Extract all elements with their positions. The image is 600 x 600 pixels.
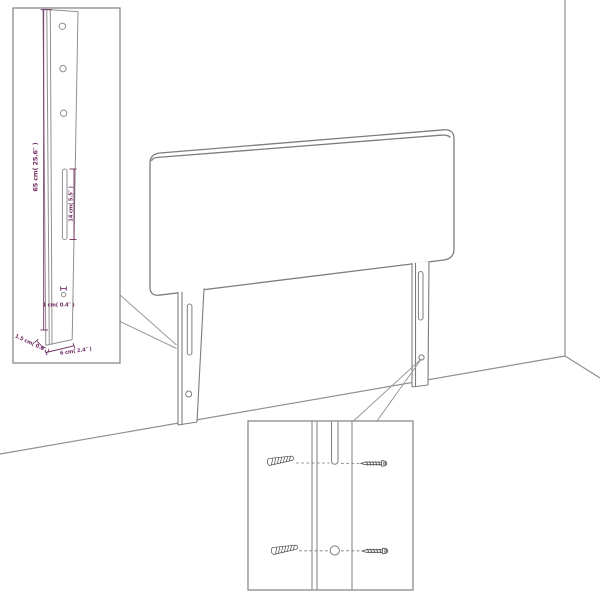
left-leg-slot bbox=[187, 304, 192, 355]
left-leg bbox=[178, 289, 204, 426]
diagram-canvas: 65 cm( 25.6″ ) 14 cm( 5.5″ ) 1 cm( 0.4″ … bbox=[0, 0, 600, 600]
slot-height-label: 14 cm( 5.5″ ) bbox=[68, 186, 74, 221]
right-leg-slot bbox=[418, 272, 423, 321]
right-callout-line-1 bbox=[354, 359, 422, 421]
callout-lines bbox=[120, 295, 421, 421]
inset-slot bbox=[62, 169, 67, 240]
inset-hole-2 bbox=[60, 65, 66, 71]
inset-box bbox=[248, 421, 413, 590]
inset-hole-3 bbox=[60, 110, 66, 116]
leg-dimension-inset: 65 cm( 25.6″ ) 14 cm( 5.5″ ) 1 cm( 0.4″ … bbox=[13, 8, 120, 363]
headboard bbox=[150, 130, 454, 296]
floor-line-right bbox=[565, 356, 600, 378]
leg-height-label: 65 cm( 25.6″ ) bbox=[32, 142, 40, 191]
inset-hole-1 bbox=[59, 23, 65, 29]
left-leg-hole bbox=[186, 391, 192, 397]
left-callout-line-1 bbox=[120, 295, 177, 345]
hole-diameter-label: 1 cm( 0.4″ ) bbox=[43, 303, 75, 309]
assembly-diagram: 65 cm( 25.6″ ) 14 cm( 5.5″ ) 1 cm( 0.4″ … bbox=[0, 0, 600, 600]
screw-detail-inset bbox=[248, 421, 413, 590]
left-callout-line-2 bbox=[120, 322, 177, 349]
inset-round-hole bbox=[330, 546, 339, 555]
right-callout-line-2 bbox=[377, 359, 421, 421]
inset-small-hole bbox=[61, 292, 65, 296]
